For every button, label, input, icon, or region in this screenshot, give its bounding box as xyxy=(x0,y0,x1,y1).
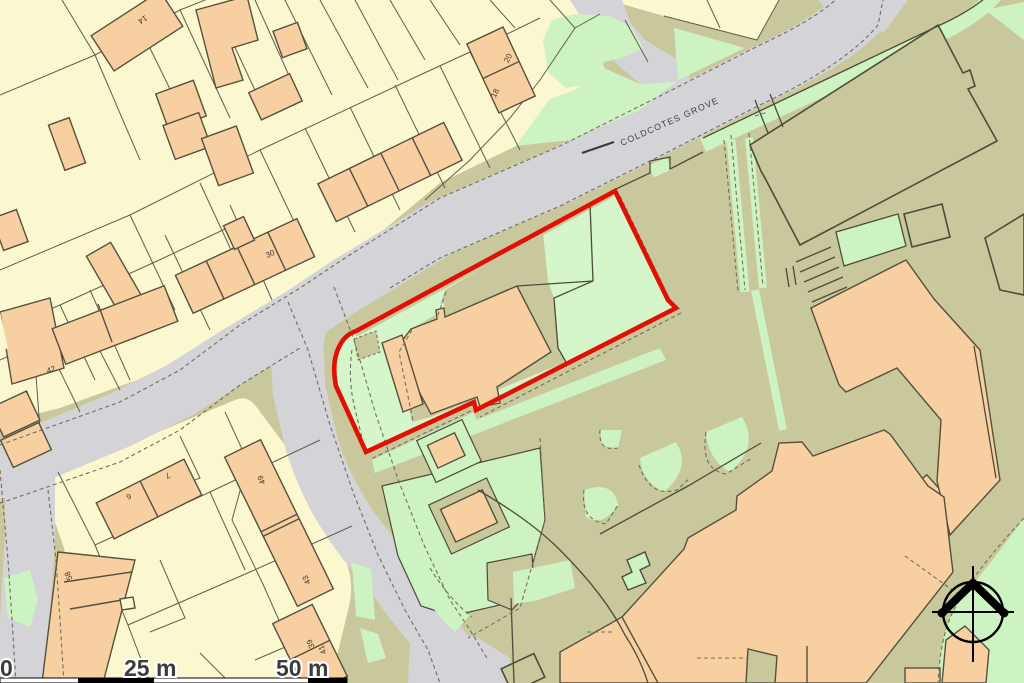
svg-text:0: 0 xyxy=(0,655,13,681)
svg-text:50 m: 50 m xyxy=(276,655,328,681)
svg-text:25 m: 25 m xyxy=(124,655,176,681)
